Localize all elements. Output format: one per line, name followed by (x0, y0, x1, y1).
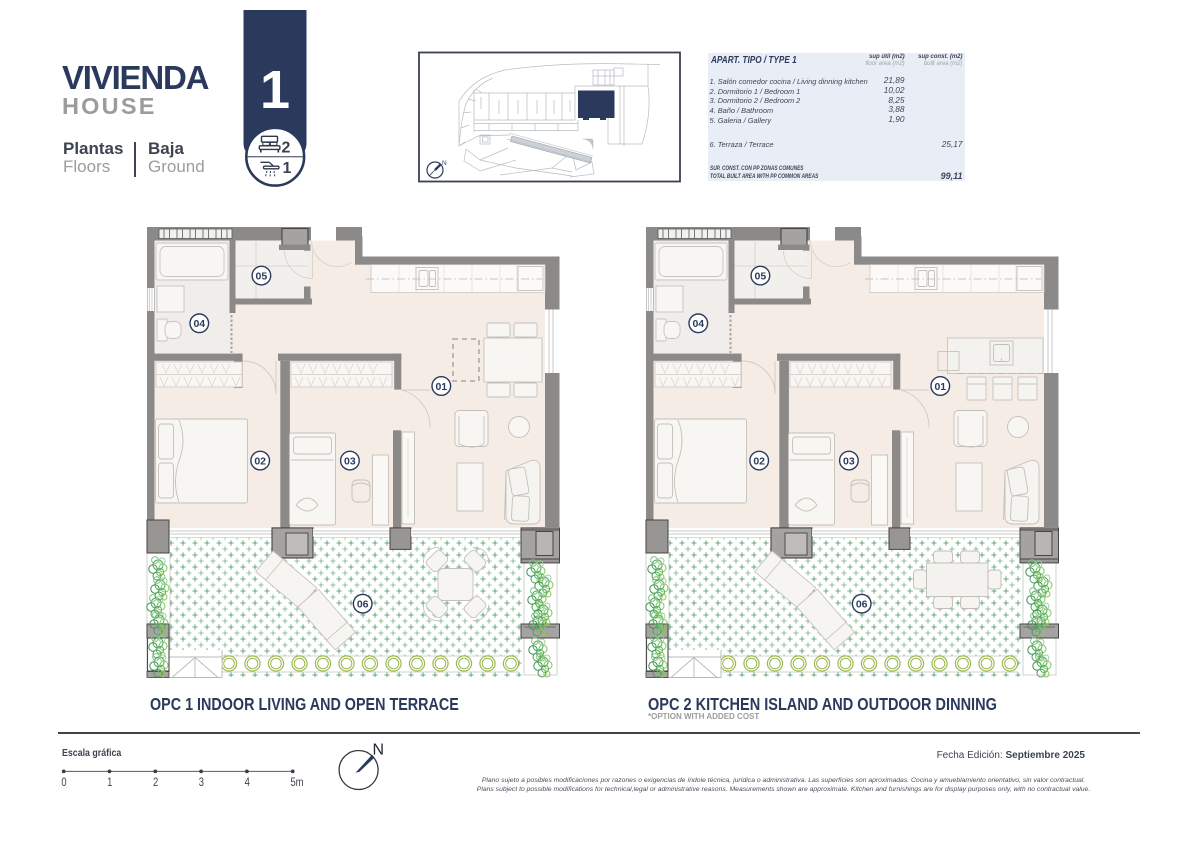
svg-text:1: 1 (283, 160, 292, 177)
svg-text:0: 0 (61, 776, 66, 789)
svg-text:2: 2 (153, 776, 158, 789)
svg-text:2: 2 (282, 140, 291, 157)
svg-text:03: 03 (344, 455, 356, 467)
svg-text:3: 3 (199, 776, 204, 789)
svg-text:N: N (373, 742, 385, 759)
svg-text:1: 1 (260, 60, 290, 120)
svg-text:06: 06 (357, 599, 369, 611)
svg-text:04: 04 (193, 318, 205, 330)
svg-text:05: 05 (256, 270, 268, 282)
svg-text:5m: 5m (290, 776, 303, 789)
svg-text:4: 4 (245, 776, 250, 789)
svg-text:01: 01 (435, 381, 447, 393)
svg-text:N: N (442, 160, 447, 167)
svg-text:1: 1 (107, 776, 112, 789)
svg-text:02: 02 (254, 455, 266, 467)
